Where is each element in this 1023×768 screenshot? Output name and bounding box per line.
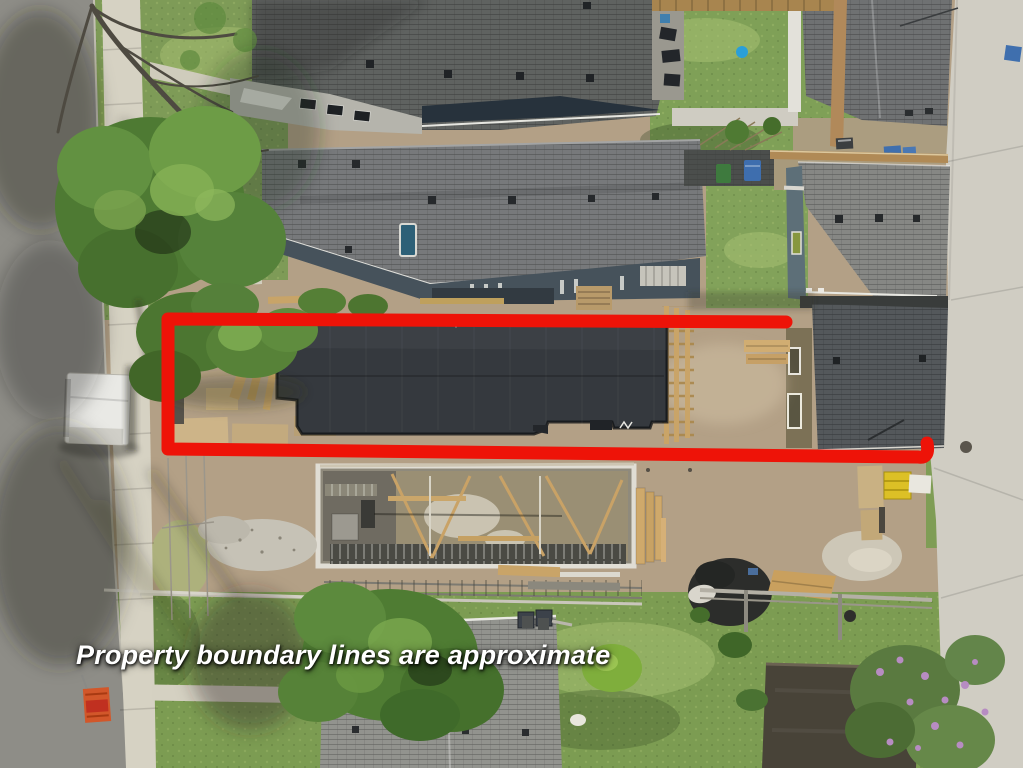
- bush: [763, 117, 781, 135]
- yellow-crate: [884, 472, 911, 499]
- manhole-spot: [960, 441, 972, 453]
- construction-foundation: [318, 464, 634, 566]
- blue-cushion: [660, 14, 670, 23]
- wheel: [844, 610, 856, 622]
- wall-window: [788, 394, 801, 428]
- subject-building: [277, 319, 667, 434]
- white-sack: [909, 474, 932, 493]
- side-wall-strip: [788, 0, 801, 112]
- wall-window: [789, 348, 800, 374]
- caption-text: Property boundary lines are approximate: [76, 640, 610, 671]
- fence-top: [652, 0, 838, 11]
- pergola: [640, 266, 686, 286]
- green-bin: [716, 164, 731, 183]
- garage-dark-roof: [684, 150, 774, 186]
- white-object: [570, 714, 586, 726]
- bush: [725, 120, 749, 144]
- wall-window: [792, 232, 801, 254]
- blue-bin: [744, 160, 761, 181]
- blue-ball: [736, 46, 748, 58]
- skylight-window: [400, 224, 416, 256]
- blue-bin-alley: [1004, 45, 1022, 62]
- aerial-photo: Property boundary lines are approximate: [0, 0, 1023, 768]
